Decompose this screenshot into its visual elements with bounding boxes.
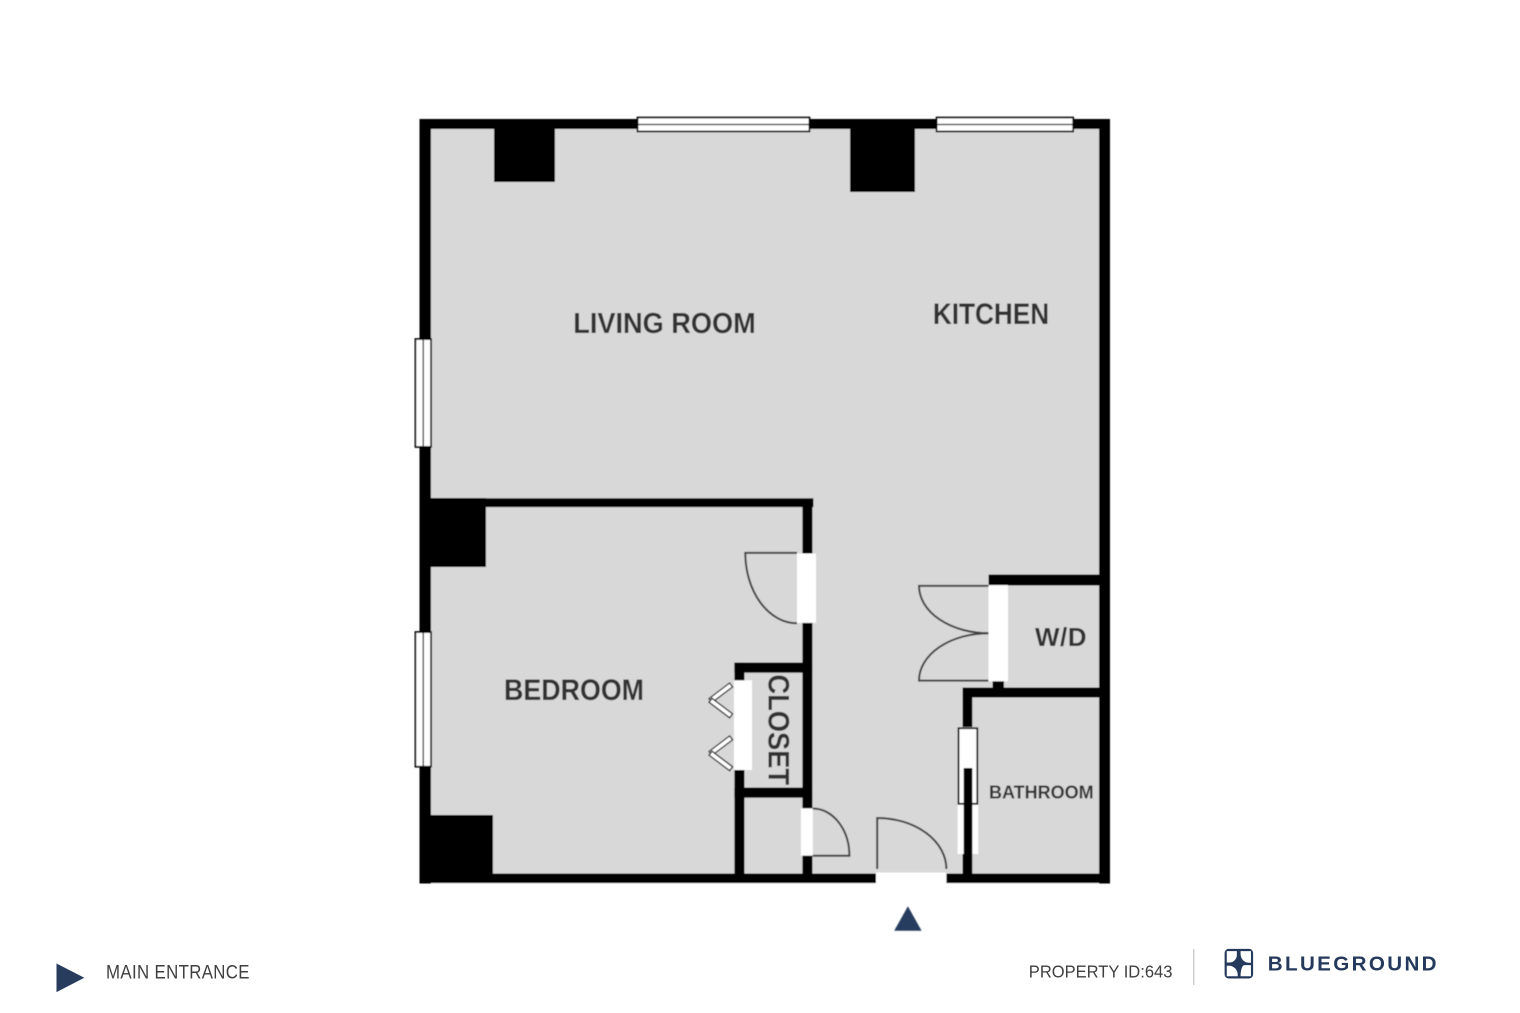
svg-text:BLUEGROUND: BLUEGROUND [1268,953,1439,976]
svg-text:BATHROOM: BATHROOM [989,782,1094,802]
svg-text:CLOSET: CLOSET [761,674,794,785]
svg-text:BEDROOM: BEDROOM [504,674,644,708]
svg-text:MAIN ENTRANCE: MAIN ENTRANCE [106,962,250,983]
svg-text:W/D: W/D [1035,622,1087,652]
svg-text:LIVING ROOM: LIVING ROOM [573,307,756,339]
svg-text:PROPERTY ID:643: PROPERTY ID:643 [1029,962,1173,981]
svg-text:KITCHEN: KITCHEN [933,298,1049,331]
